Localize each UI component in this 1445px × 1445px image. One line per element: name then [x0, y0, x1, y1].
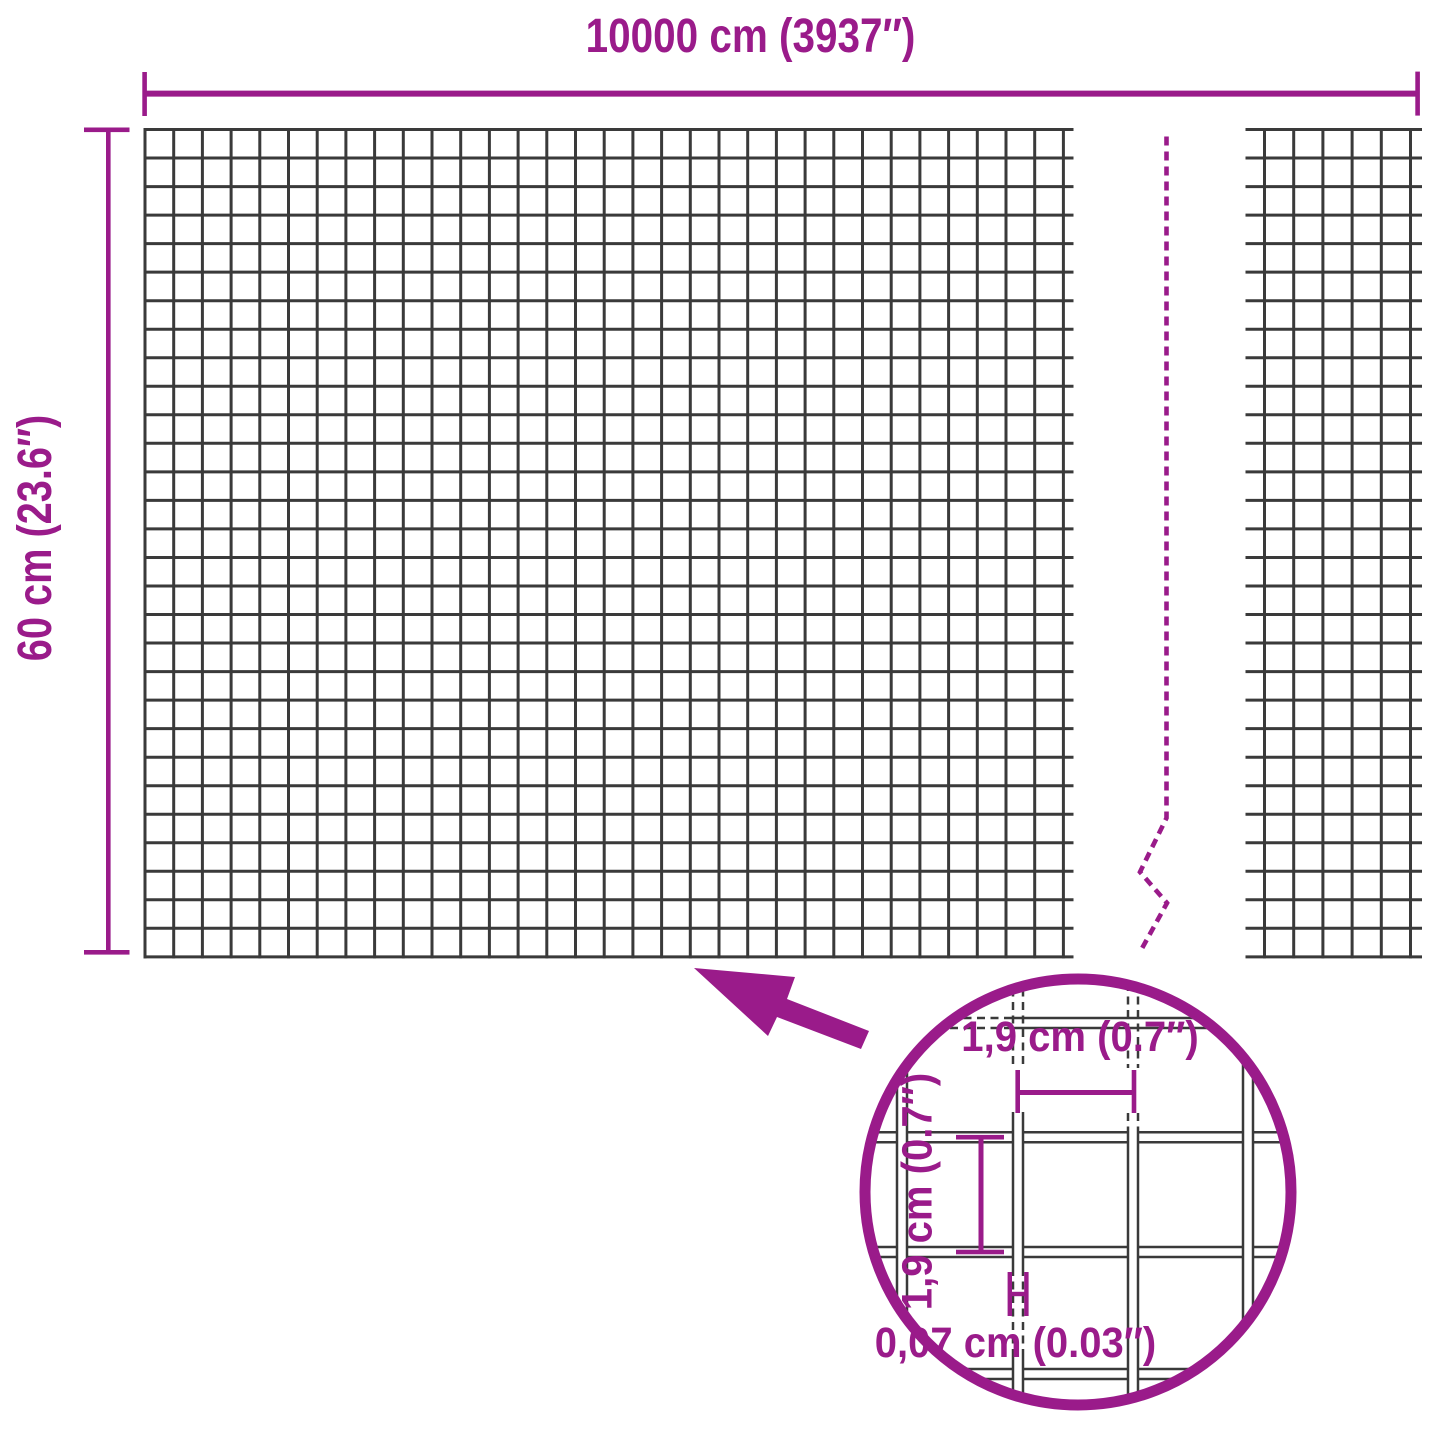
svg-text:1,9 cm (0.7″): 1,9 cm (0.7″)	[892, 1073, 941, 1310]
svg-text:1,9 cm (0.7″): 1,9 cm (0.7″)	[961, 1012, 1198, 1061]
svg-text:10000 cm (3937″): 10000 cm (3937″)	[586, 10, 916, 63]
svg-text:60 cm (23.6″): 60 cm (23.6″)	[9, 415, 62, 661]
